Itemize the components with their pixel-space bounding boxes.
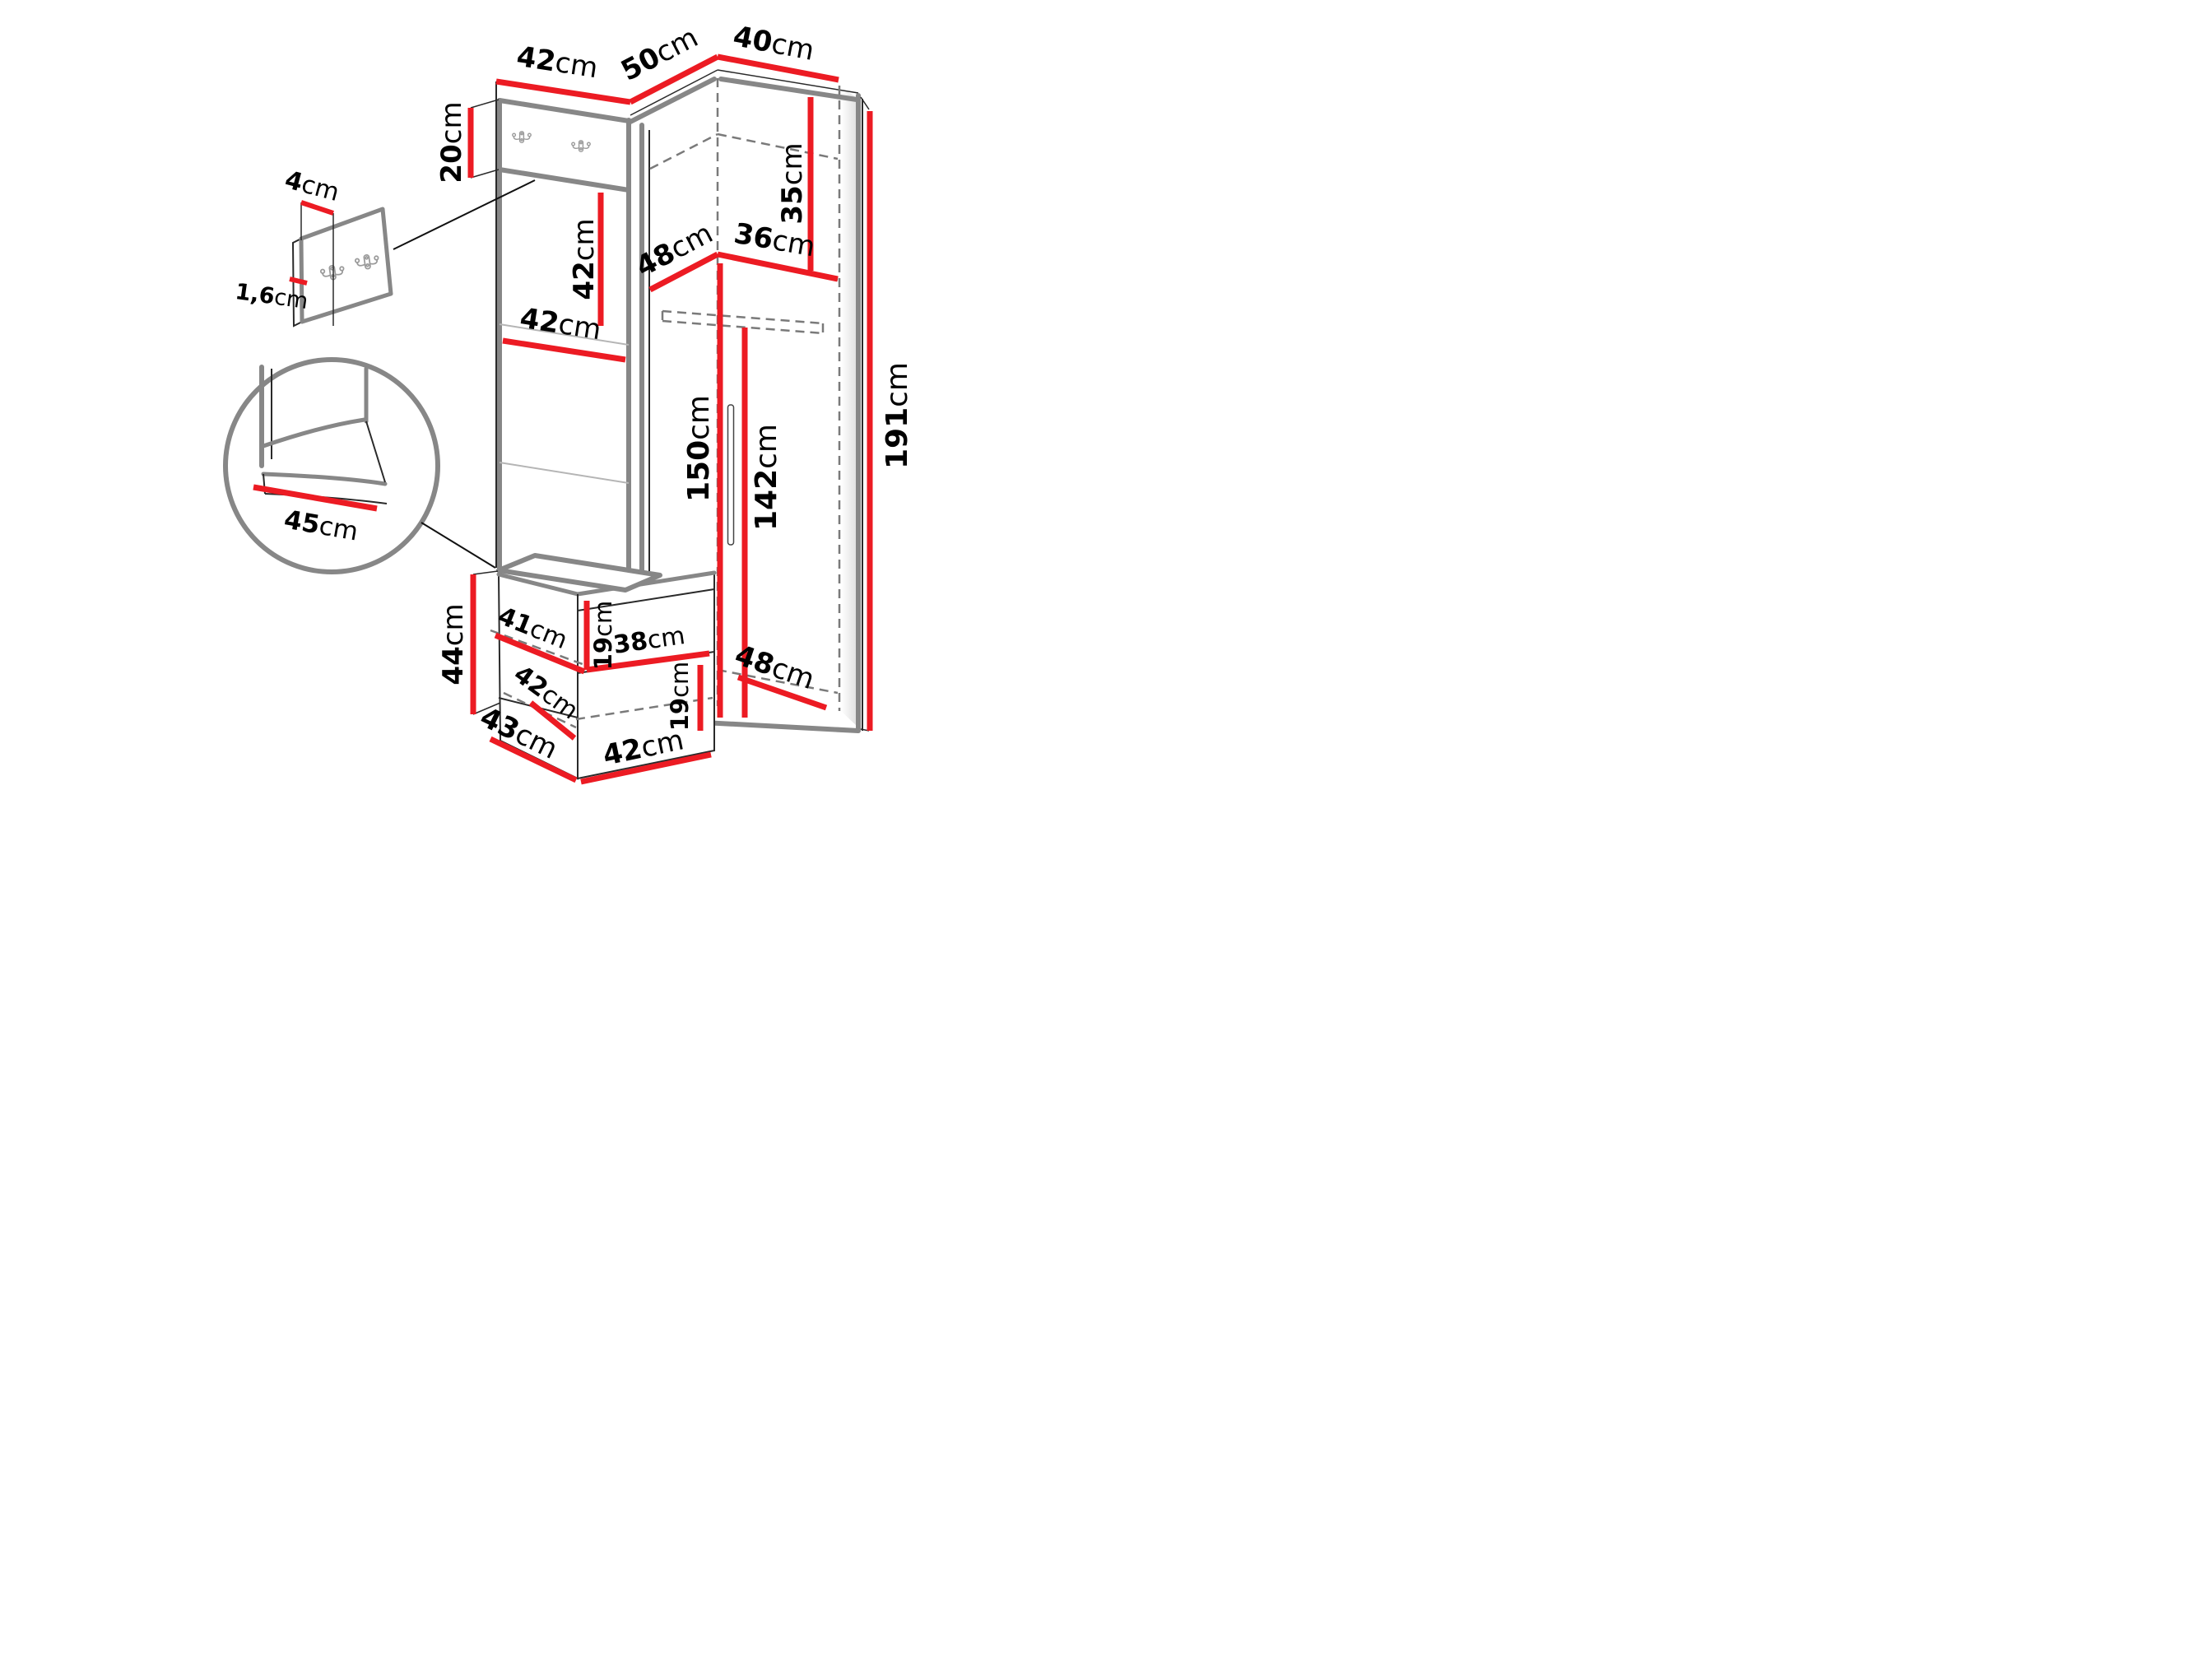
pointer-hook-panel-detail [393,180,535,249]
dim-label-top-panel-width: 42cm [514,39,600,85]
dim-label-panel-segment-height: 42cm [568,218,601,300]
wardrobe-top-shelf-hidden-edge-left [650,134,718,169]
dim-label-panel-width: 42cm [518,301,603,346]
dim-label-hook-panel-height: 20cm [435,101,468,183]
hook-panel-bottom-edge [500,170,629,190]
wardrobe-right-side-shading [841,87,858,727]
extension-line [471,170,499,178]
coat-hook-icon [572,141,590,151]
coat-hook-icon [513,132,531,142]
wardrobe-top-front-edge-left [630,79,714,122]
dim-line-niche-width [718,254,838,279]
dim-label-detail-hook-depth: 4cm [282,165,342,207]
extension-line [473,571,498,574]
diagram-page: 42cm 50cm 40cm 20cm 4cm 1,6cm 42cm 42cm … [0,0,1106,829]
detail-panel-front-face [301,209,391,322]
extension-line [471,100,499,108]
dim-label-hanging-height: 142cm [750,424,783,531]
dim-label-bench-height: 44cm [437,603,470,685]
dim-label-bench-bottom-opening-height: 19cm [666,662,694,732]
hanger-rail-hidden-top [662,311,823,323]
hook-panel-top-edge [500,100,629,121]
dim-label-interior-height: 150cm [682,395,716,502]
dim-line-panel-width [503,341,625,360]
pointer-seat-detail [421,523,495,568]
dim-line-top-panel-width [496,81,630,102]
dim-label-total-height: 191cm [881,362,914,469]
hallway-furniture-dimension-diagram: 42cm 50cm 40cm 20cm 4cm 1,6cm 42cm 42cm … [0,0,1106,829]
door-handle [728,405,734,545]
dim-label-niche-height: 35cm [776,142,809,224]
dim-label-top-left-section-width: 50cm [616,21,703,87]
detail-hook-panel [293,202,391,326]
panel-seam-line [500,462,629,483]
